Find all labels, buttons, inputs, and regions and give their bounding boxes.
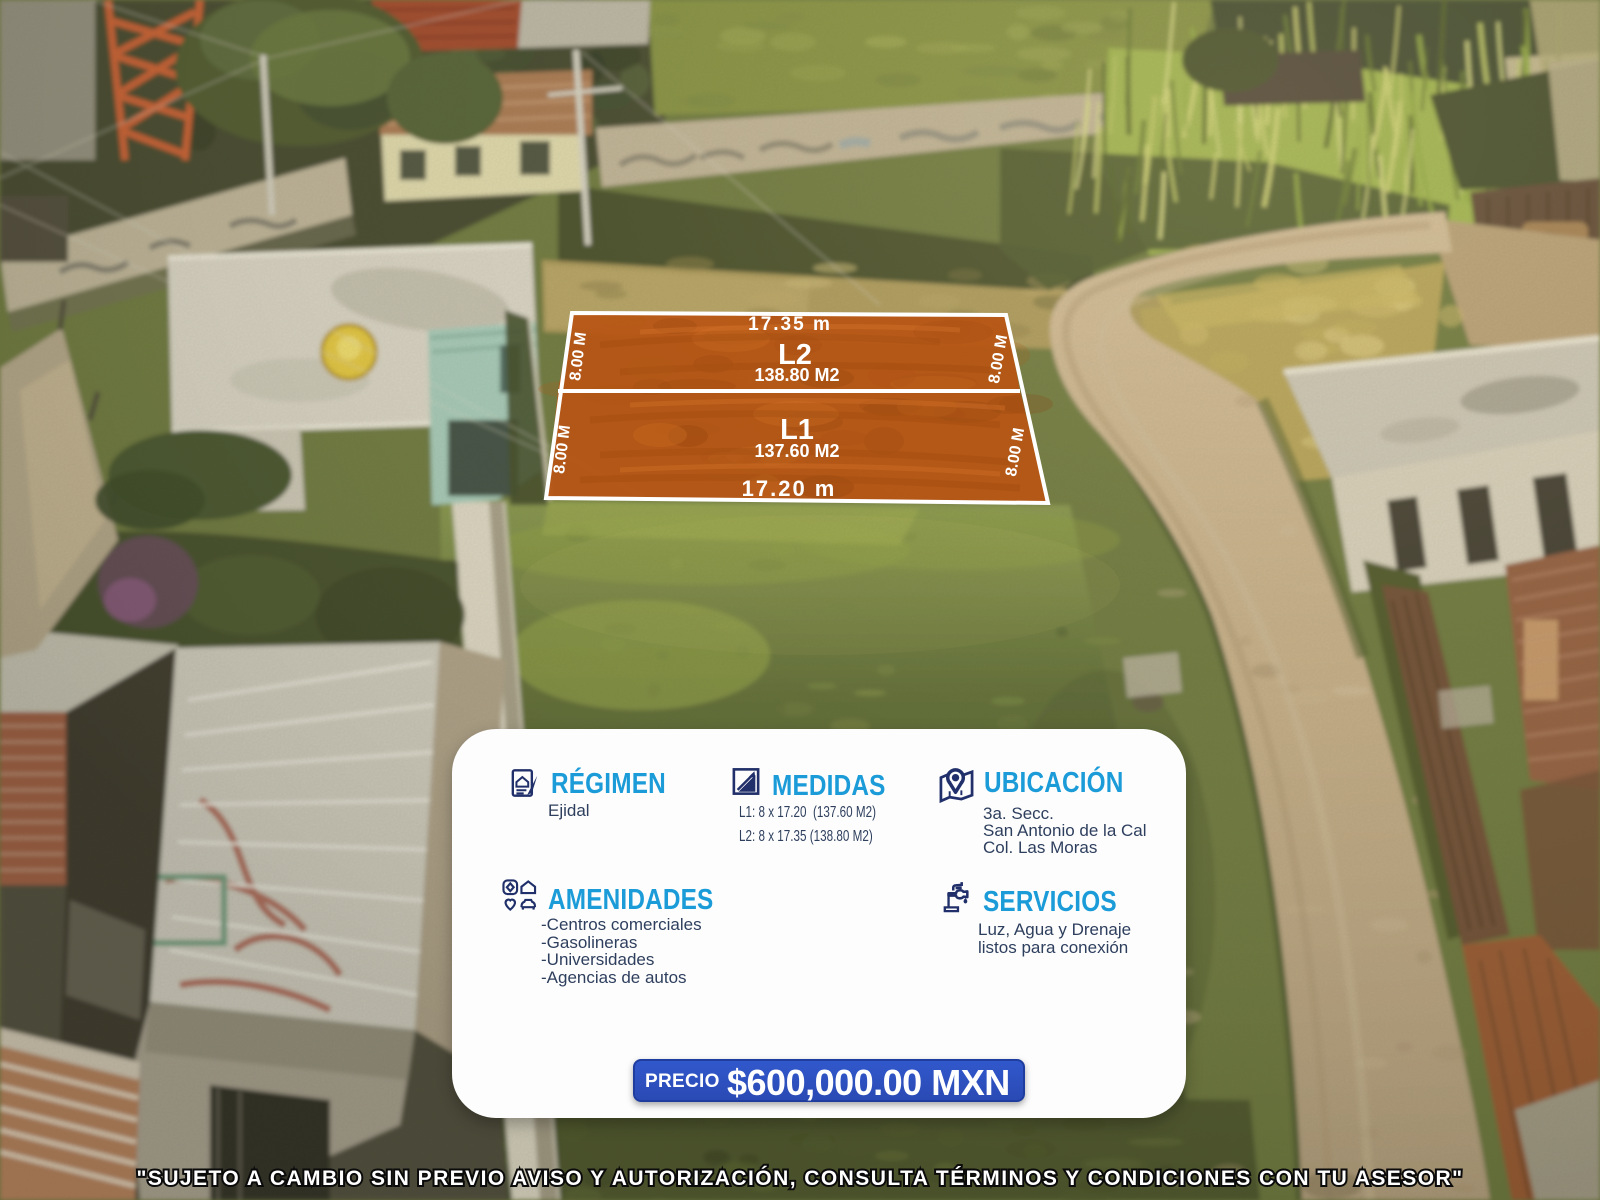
svg-text:138.80 M2: 138.80 M2 bbox=[754, 365, 839, 385]
svg-text:137.60 M2: 137.60 M2 bbox=[754, 441, 839, 461]
svg-text:17.35 m: 17.35 m bbox=[748, 314, 832, 335]
svg-text:17.20 m: 17.20 m bbox=[742, 476, 837, 501]
